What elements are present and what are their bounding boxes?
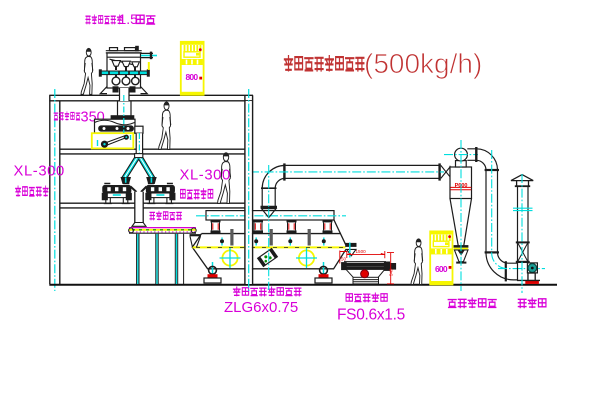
svg-text:(500kg/h): (500kg/h)	[364, 48, 482, 79]
svg-text:545: 545	[389, 268, 394, 276]
svg-text:600: 600	[435, 264, 448, 274]
svg-text:1500: 1500	[356, 249, 367, 254]
svg-text:XL-300: XL-300	[180, 168, 231, 184]
svg-text:800: 800	[186, 72, 199, 82]
svg-text:XL-300: XL-300	[14, 164, 65, 180]
svg-text:1.5: 1.5	[119, 11, 139, 27]
svg-text:ZLG6x0.75: ZLG6x0.75	[224, 299, 298, 316]
svg-text:FS0.6x1.5: FS0.6x1.5	[337, 307, 405, 324]
svg-text:50: 50	[341, 257, 347, 262]
